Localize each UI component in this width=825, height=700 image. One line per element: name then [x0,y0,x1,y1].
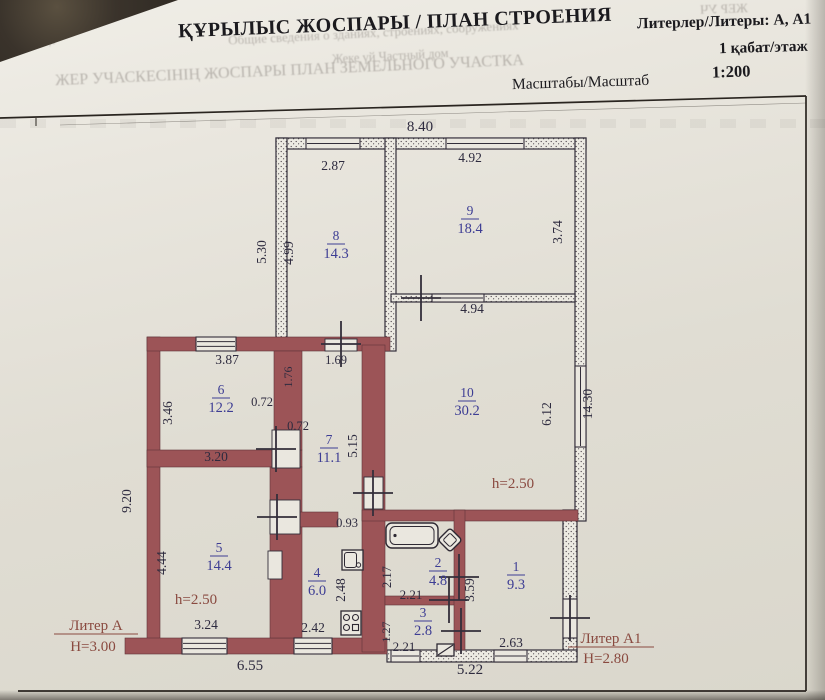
room-area: 11.1 [317,450,342,466]
room-number: 10 [460,385,474,400]
dimension-label: 0.72 [251,395,273,409]
photo-edge-shadow-bottom [0,690,825,700]
room-number: 3 [420,605,427,620]
floor-plan-drawing: 814.3918.41030.2612.2711.1514.446.024.83… [0,0,825,700]
window [182,638,227,654]
room-number: 4 [314,565,321,580]
dimension-label: 3.87 [215,352,239,367]
room-number: 5 [216,540,223,555]
note-label: h=2.50 [492,476,534,492]
dimension-label: 2.48 [333,578,348,602]
room-area: 9.3 [507,577,525,593]
room-area: 14.3 [323,246,348,262]
dimension-label: 4.44 [154,551,169,575]
room-number: 8 [333,228,340,243]
note-label: Литер А1 [581,631,642,647]
note-label: Н=2.80 [583,651,629,667]
dimension-label: 2.87 [321,158,345,173]
dimension-label: 4.99 [281,241,296,265]
dimension-label: 8.40 [407,119,433,135]
dimension-label: 3.24 [194,617,218,632]
window [294,638,332,654]
scanned-floor-plan-sheet: Общие сведения о зданиях, строениях, соо… [0,0,825,700]
dimension-label: 3.74 [550,220,565,244]
fixture-bathtub [393,534,396,537]
dimension-label: 3.20 [204,449,228,464]
window [196,337,236,351]
dimension-label: 5.15 [345,434,360,458]
wall-hatched [385,138,396,351]
room-number: 1 [513,559,520,574]
room-number: 7 [326,432,333,447]
note-label: Н=3.00 [70,639,116,655]
dimension-label: 0.93 [336,516,358,530]
dimension-label: 2.63 [499,635,523,650]
dimension-label: 0.72 [287,419,309,433]
dimension-label: 5.30 [254,240,269,264]
note-label: h=2.50 [175,592,217,608]
room-area: 14.4 [206,558,232,574]
photo-edge-shadow-right [805,0,825,700]
dimension-label: 1.69 [325,353,347,367]
door-opening [268,551,282,579]
dimension-label: 2.42 [301,620,325,635]
room-area: 18.4 [457,221,483,237]
dimension-label: 4.92 [458,150,482,165]
dimension-label: 1.76 [281,367,295,388]
room-area: 6.0 [308,583,326,599]
dimension-label: 3.46 [160,401,175,425]
room-number: 2 [435,555,442,570]
fixture-stove [341,611,361,635]
dimension-label: 3.59 [462,578,477,602]
room-number: 9 [467,203,474,218]
dimension-label: 6.55 [237,658,263,674]
dimension-label: 14.30 [580,389,595,420]
room-area: 30.2 [454,403,479,419]
dimension-label: 2.17 [380,566,394,588]
note-label: Литер А [69,618,123,634]
dimension-label: 1.27 [379,622,393,643]
wall-solid [362,510,578,521]
dimension-label: 9.20 [119,489,134,513]
dimension-label: 2.21 [400,587,423,602]
dimension-label: 5.22 [457,662,483,678]
wall-solid [147,337,160,653]
dimension-label: 4.94 [460,301,484,316]
room-area: 12.2 [208,400,233,416]
dimension-label: 2.21 [393,639,416,654]
wall-solid [125,638,387,654]
room-area: 4.8 [429,573,447,589]
room-number: 6 [218,382,225,397]
room-area: 2.8 [414,623,432,639]
dimension-label: 6.12 [539,402,554,426]
wall-hatched [575,138,586,521]
